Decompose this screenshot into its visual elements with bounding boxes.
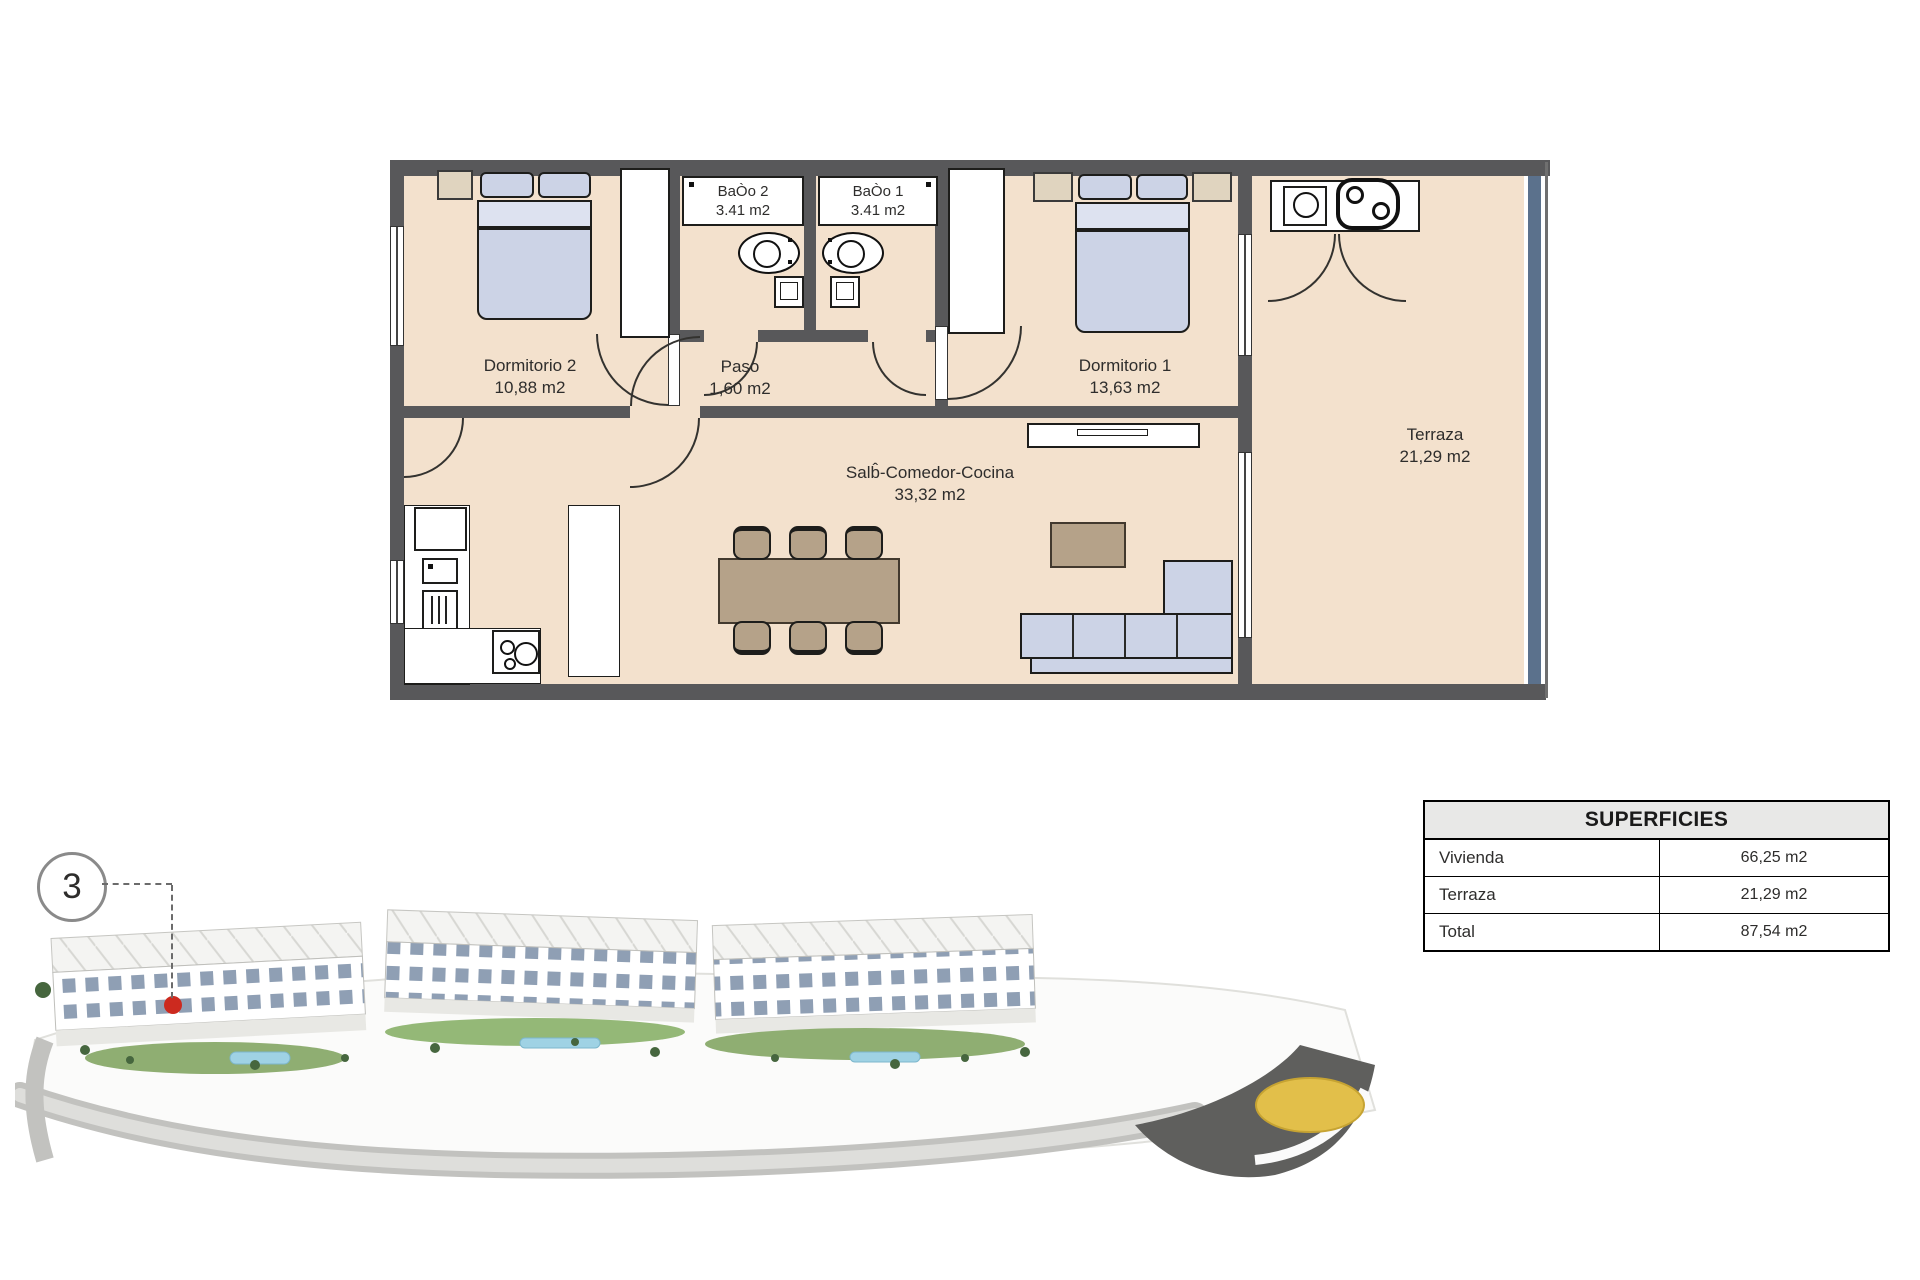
dining-chair-top-3	[845, 526, 883, 560]
road-left-spur	[34, 1040, 45, 1160]
superficies-table: SUPERFICIES Vivienda 66,25 m2 Terraza 21…	[1423, 800, 1890, 952]
sink-bano1-basin	[836, 282, 854, 300]
pool-2	[520, 1038, 600, 1048]
dining-chair-top-1	[733, 526, 771, 560]
door-leaf-dorm1	[935, 326, 948, 400]
sofa-back	[1030, 657, 1233, 674]
kitchen-sink-tap	[428, 564, 433, 569]
wall-salon-terrace-3	[1238, 638, 1252, 684]
room-label-salon: Salb̂-Comedor-Cocina 33,32 m2	[810, 462, 1050, 507]
window-kitchen	[390, 560, 404, 624]
dorm1-nightstand-right	[1192, 172, 1232, 202]
sofa-seam-2	[1124, 615, 1126, 657]
dormitorio1-area: 13,63 m2	[1045, 377, 1205, 399]
tv-cabinet-detail	[1077, 429, 1148, 436]
table-row-terraza: Terraza 21,29 m2	[1425, 877, 1888, 914]
dining-table	[718, 558, 900, 624]
room-label-bano1: BaÒo 1 3.41 m2	[818, 176, 938, 226]
dining-chair-top-2	[789, 526, 827, 560]
unit-location-dot	[164, 996, 182, 1014]
paso-area: 1,60 m2	[690, 378, 790, 400]
wall-salon-top-b	[700, 406, 1238, 418]
salon-area: 33,32 m2	[810, 484, 1050, 506]
kitchen-sink	[422, 558, 458, 584]
room-label-paso: Paso 1,60 m2	[690, 356, 790, 401]
sofa-seat	[1020, 613, 1233, 659]
wall-bottom	[390, 684, 1546, 700]
toilet-bano2-dot1	[788, 238, 792, 242]
sofa-seam-1	[1072, 615, 1074, 657]
dorm2-pillow-right	[538, 172, 591, 198]
toilet-bano2-dot2	[788, 260, 792, 264]
kitchen-fridge	[414, 507, 467, 551]
room-label-terraza: Terraza 21,29 m2	[1355, 424, 1515, 469]
wall-salon-top-a	[404, 406, 630, 418]
bano2-name: BaÒo 2	[718, 182, 769, 202]
dorm1-pillow-right	[1136, 174, 1188, 200]
sofa-chaise	[1163, 560, 1233, 615]
dining-chair-bottom-1	[733, 621, 771, 655]
building-render	[15, 860, 1395, 1190]
hob-burner-large	[514, 642, 538, 666]
row-value: 21,29 m2	[1660, 877, 1888, 913]
salon-name: Salb̂-Comedor-Cocina	[810, 462, 1050, 484]
roundabout-yellow	[1256, 1078, 1364, 1132]
sliding-door-terrace	[1238, 452, 1252, 638]
wall-bath-divider	[804, 176, 816, 330]
window-dormitorio2	[390, 226, 404, 346]
bano1-vent-dot	[926, 182, 931, 187]
hob-burner-small-1	[500, 640, 515, 655]
laundry-sink	[1336, 178, 1400, 230]
dorm1-pillow-left	[1078, 174, 1132, 200]
laundry-tap-2	[1372, 202, 1390, 220]
room-label-dormitorio1: Dormitorio 1 13,63 m2	[1045, 355, 1205, 400]
building-block-3	[712, 914, 1036, 1033]
dorm1-nightstand-left	[1033, 172, 1073, 202]
building-block-1	[51, 922, 366, 1046]
room-label-dormitorio2: Dormitorio 2 10,88 m2	[450, 355, 610, 400]
toilet-bano1-lid	[837, 240, 865, 268]
room-label-bano2: BaÒo 2 3.41 m2	[682, 176, 804, 226]
kitchen-island	[568, 505, 620, 677]
marker-dash-vertical	[171, 885, 173, 998]
row-label: Total	[1425, 914, 1660, 950]
block3-facade	[713, 948, 1035, 1019]
coffee-table	[1050, 522, 1126, 568]
marker-dash-horizontal	[102, 883, 172, 885]
dining-chair-bottom-2	[789, 621, 827, 655]
terraza-name: Terraza	[1355, 424, 1515, 446]
hob-burner-small-2	[504, 658, 516, 670]
terraza-area: 21,29 m2	[1355, 446, 1515, 468]
unit-marker-circle: 3	[37, 852, 107, 922]
dorm2-bed	[477, 228, 592, 320]
row-label: Terraza	[1425, 877, 1660, 913]
paso-name: Paso	[690, 356, 790, 378]
terrace-glass-railing	[1528, 176, 1541, 684]
toilet-bano1-dot2	[828, 260, 832, 264]
row-value: 66,25 m2	[1660, 840, 1888, 876]
wall-right-edge	[1545, 162, 1548, 698]
dorm2-bed-sheet	[477, 200, 592, 228]
table-row-vivienda: Vivienda 66,25 m2	[1425, 840, 1888, 877]
dorm2-pillow-left	[480, 172, 534, 198]
wall-salon-terrace-2	[1238, 356, 1252, 452]
dorm1-bed-sheet	[1075, 202, 1190, 230]
washing-machine-drum	[1293, 192, 1319, 218]
sink-bano2-basin	[780, 282, 798, 300]
building-block-2	[384, 910, 697, 1023]
bano2-area: 3.41 m2	[716, 201, 770, 221]
dormitorio2-name: Dormitorio 2	[450, 355, 610, 377]
bano1-name: BaÒo 1	[853, 182, 904, 202]
pool-1	[230, 1052, 290, 1064]
window-dormitorio1-terrace	[1238, 234, 1252, 356]
kitchen-drawers	[422, 590, 458, 630]
floor-plan: BaÒo 2 3.41 m2 BaÒo 1 3.41 m2	[390, 160, 1550, 700]
toilet-bano2-lid	[753, 240, 781, 268]
dorm1-bed	[1075, 230, 1190, 333]
dormitorio2-area: 10,88 m2	[450, 377, 610, 399]
dorm1-wardrobe	[948, 168, 1005, 334]
wall-bath-front-c	[926, 330, 935, 342]
bano1-area: 3.41 m2	[851, 201, 905, 221]
pool-3	[850, 1052, 920, 1062]
unit-marker-number: 3	[62, 867, 81, 907]
dining-chair-bottom-3	[845, 621, 883, 655]
garden-1	[85, 1042, 345, 1074]
row-label: Vivienda	[1425, 840, 1660, 876]
wall-salon-terrace-1	[1238, 176, 1252, 234]
laundry-tap-1	[1346, 186, 1364, 204]
table-row-total: Total 87,54 m2	[1425, 914, 1888, 950]
wall-bath-front-b	[758, 330, 868, 342]
toilet-bano1-dot1	[828, 238, 832, 242]
dormitorio1-name: Dormitorio 1	[1045, 355, 1205, 377]
bano2-vent-dot	[689, 182, 694, 187]
page: BaÒo 2 3.41 m2 BaÒo 1 3.41 m2	[0, 0, 1920, 1280]
dorm2-nightstand	[437, 170, 473, 200]
sofa-seam-3	[1176, 615, 1178, 657]
dorm2-wardrobe	[620, 168, 670, 338]
row-value: 87,54 m2	[1660, 914, 1888, 950]
block2-facade	[385, 942, 697, 1009]
superficies-title: SUPERFICIES	[1425, 802, 1888, 840]
